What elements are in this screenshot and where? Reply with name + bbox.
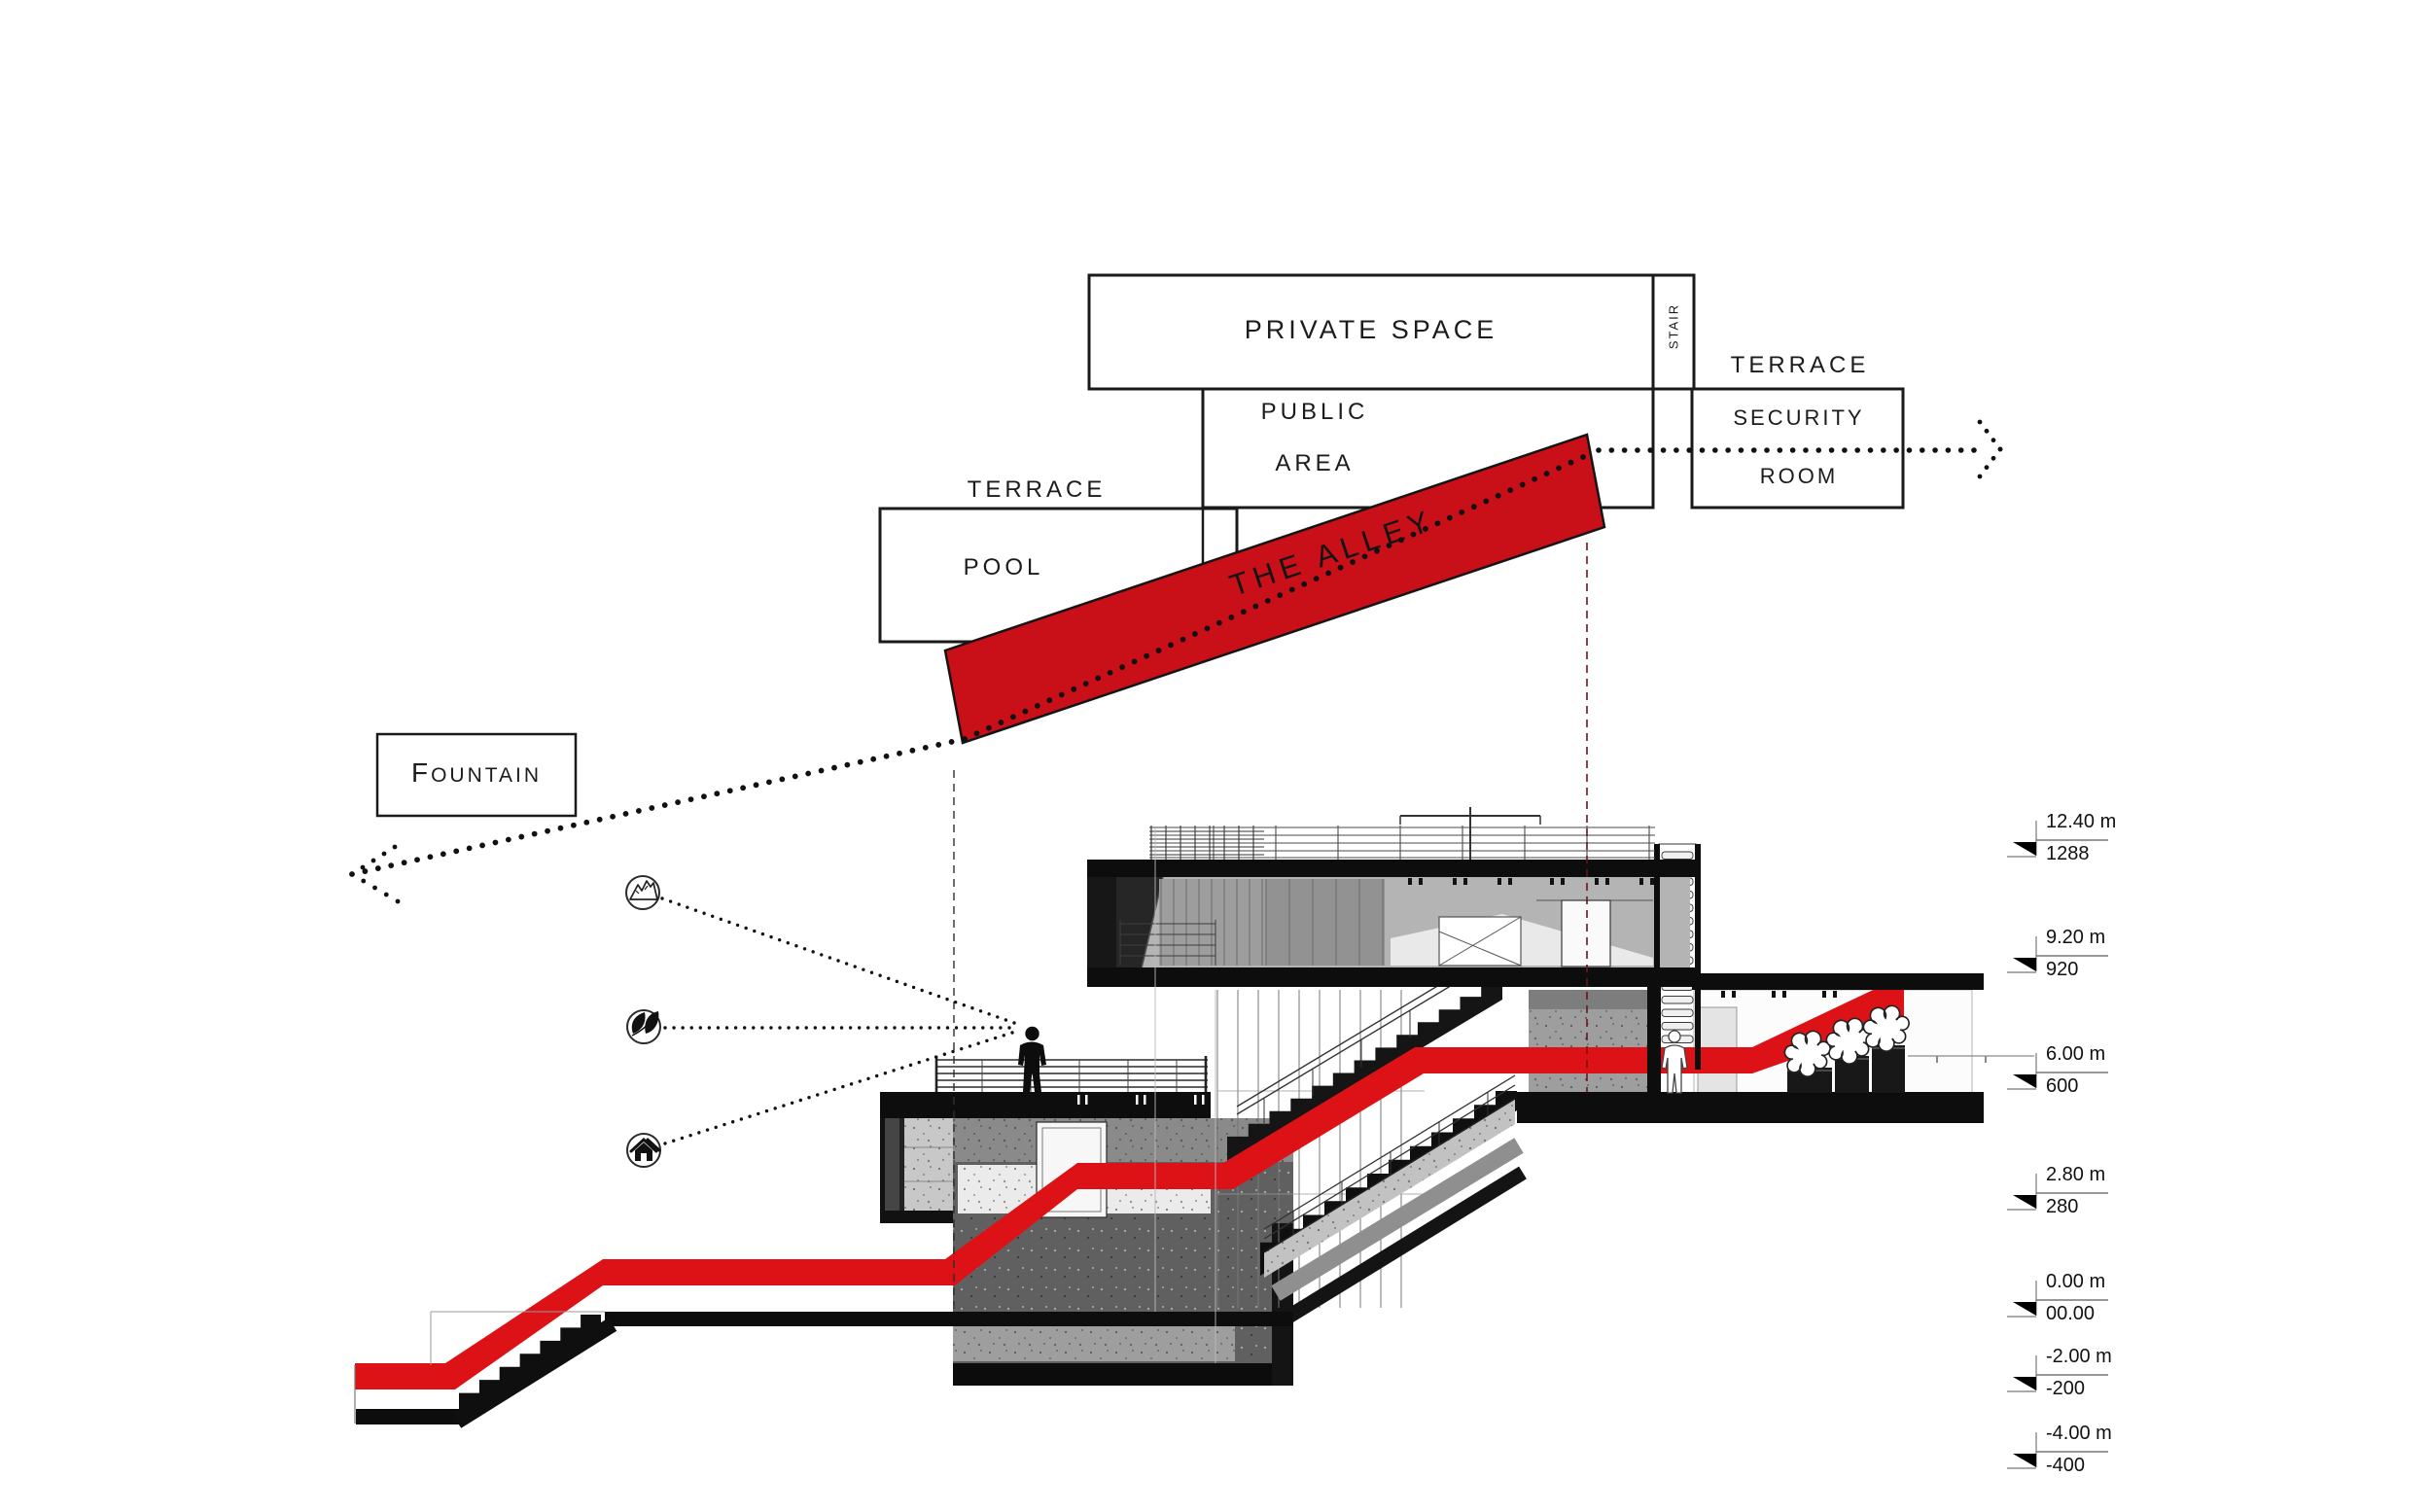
- marker-label-280m: 2.80 m: [2046, 1164, 2163, 1186]
- elevation-markers: [2007, 821, 2108, 1468]
- view-icons: [626, 876, 660, 1167]
- label-pool: POOL: [887, 554, 1120, 581]
- marker-label-600m: 6.00 m: [2046, 1043, 2163, 1066]
- marker-label-1240: 12.40 m: [2046, 811, 2163, 833]
- mountain-icon: [626, 876, 659, 909]
- label-terrace-upper: TERRACE: [1694, 352, 1906, 379]
- label-area: AREA: [1217, 450, 1412, 477]
- label-stair: STAIR: [1667, 278, 1681, 375]
- label-terrace-lower: TERRACE: [920, 476, 1153, 504]
- label-public: PUBLIC: [1217, 399, 1412, 426]
- marker-value-1288: 1288: [2046, 843, 2163, 865]
- label-room: ROOM: [1694, 464, 1904, 489]
- walkway-slab: [605, 1312, 1293, 1326]
- marker-value-0000: 00.00: [2046, 1303, 2163, 1325]
- right-wing-roof-slab: [1692, 973, 1984, 990]
- section-diagram: PRIVATE SPACE STAIR TERRACE SECURITY ROO…: [0, 0, 2431, 1512]
- terrace-slab: [880, 1092, 1211, 1118]
- label-security: SECURITY: [1694, 405, 1904, 431]
- upper-volume-door: [1562, 900, 1610, 967]
- marker-value-280: 280: [2046, 1196, 2163, 1218]
- label-fountain: FOUNTAIN: [379, 757, 574, 789]
- right-wing-floor-slab: [1517, 1092, 1984, 1123]
- landing-slab: [356, 1409, 465, 1424]
- leaf-icon: [627, 1010, 660, 1043]
- roof-slab: [1087, 860, 1696, 877]
- upper-floor-slab: [1087, 967, 1696, 987]
- marker-label-m400m: -4.00 m: [2046, 1423, 2163, 1445]
- marker-label-m200m: -2.00 m: [2046, 1346, 2163, 1368]
- building-section: [355, 807, 2034, 1424]
- marker-value-920: 920: [2046, 959, 2163, 981]
- marker-value-m200: -200: [2046, 1378, 2163, 1400]
- marker-label-000m: 0.00 m: [2046, 1271, 2163, 1293]
- mid-concrete-wall: [1529, 990, 1647, 1094]
- house-icon: [627, 1134, 660, 1167]
- marker-label-920m: 9.20 m: [2046, 927, 2163, 949]
- person-silhouette: [1018, 1027, 1046, 1092]
- marker-value-m400: -400: [2046, 1455, 2163, 1477]
- label-private-space: PRIVATE SPACE: [1089, 315, 1653, 345]
- marker-value-600: 600: [2046, 1075, 2163, 1098]
